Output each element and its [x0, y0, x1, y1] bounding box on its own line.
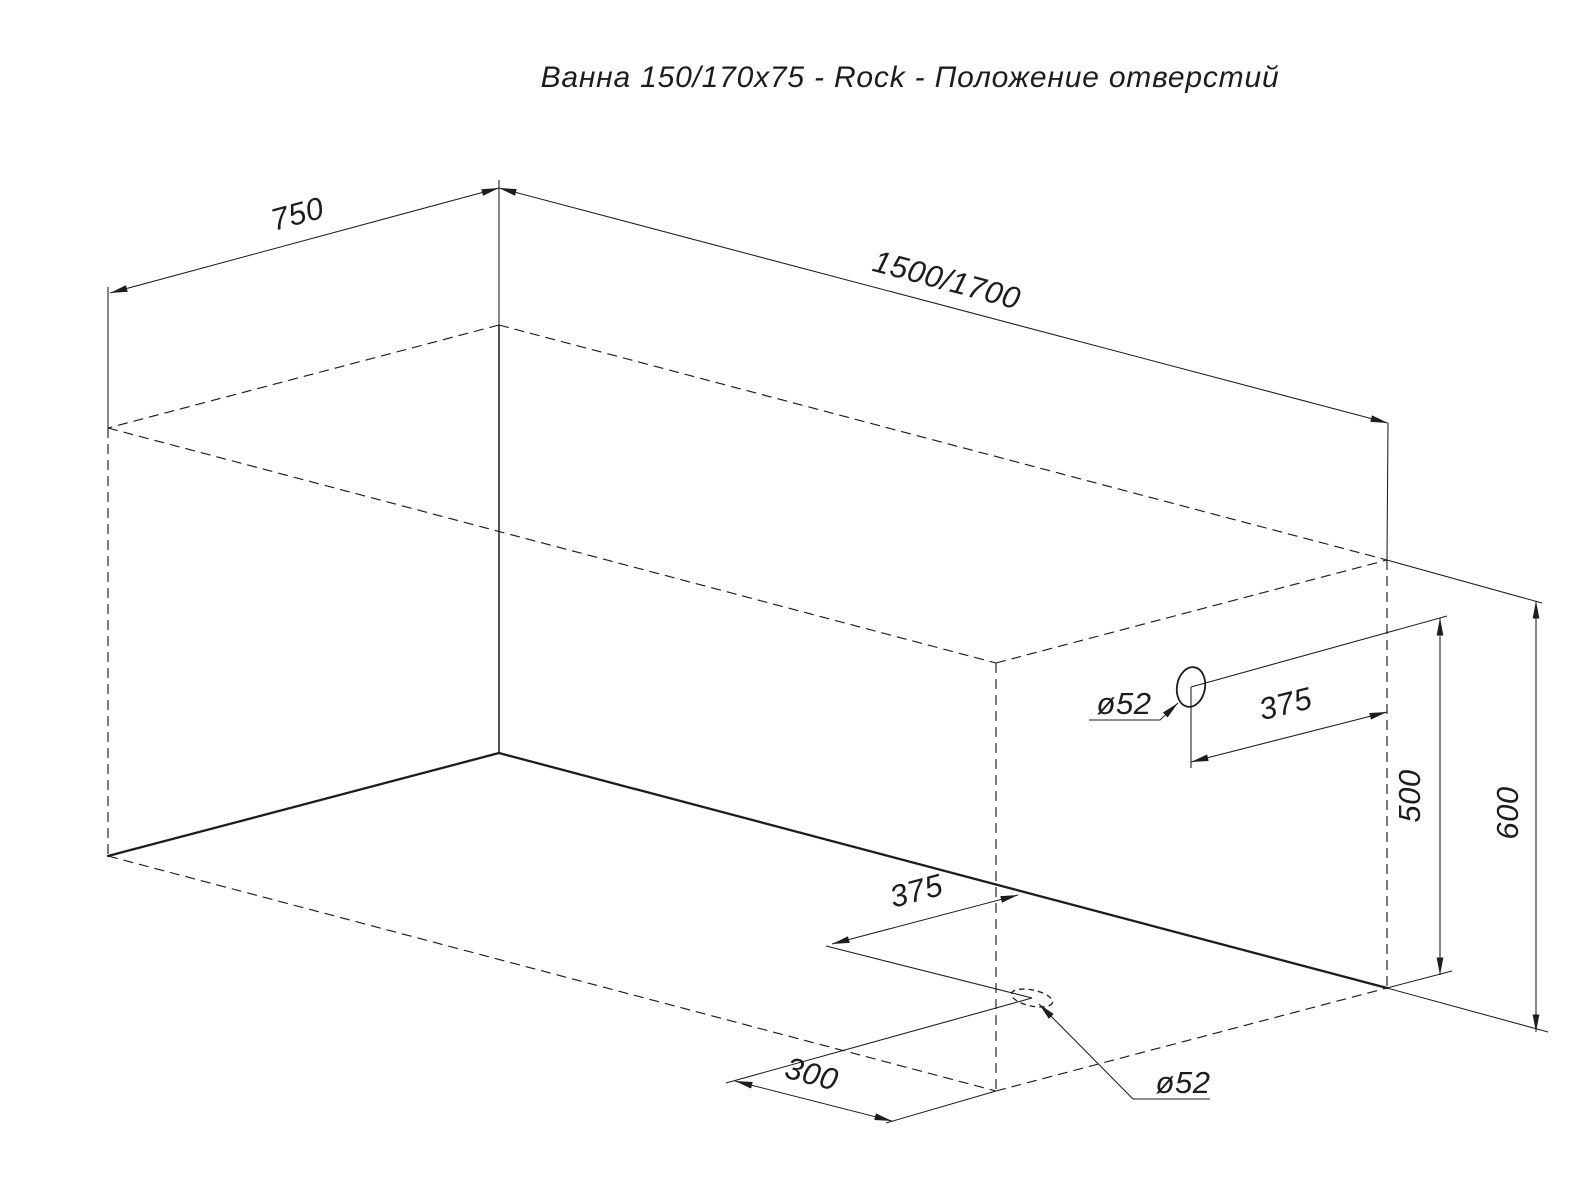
extension-lines [108, 180, 1548, 1123]
dim-label-length: 1500/1700 [869, 243, 1024, 316]
top-rim-back-right-edge [996, 560, 1387, 663]
bottom-back-left-edge [108, 856, 996, 1091]
bottom-front-right-edge [499, 753, 1387, 988]
dimension-overflow-offset-375: 375 [1191, 680, 1387, 762]
drain-hole-group: ø52 [1010, 986, 1211, 1100]
dim-label-overflow-offset: 375 [1255, 680, 1315, 727]
ext-overflow-height-top [1191, 616, 1447, 687]
dim-label-width: 750 [267, 190, 327, 238]
visible-edges [108, 325, 1387, 988]
overflow-diameter-label: ø52 [1097, 686, 1152, 721]
dim-line-length [499, 188, 1388, 423]
dim-label-overflow-height: 500 [1392, 769, 1427, 822]
dimension-length-1500-1700: 1500/1700 [499, 188, 1388, 423]
top-rim-front-left-edge [108, 325, 499, 428]
dim-label-drain-back: 300 [781, 1050, 841, 1098]
hidden-edges [108, 325, 1387, 1091]
dimension-width-750: 750 [110, 188, 499, 293]
dimension-height-600: 600 [1490, 601, 1536, 1032]
ext-overflow-height-bottom [1387, 971, 1452, 988]
bottom-front-left-edge [108, 753, 499, 856]
technical-drawing-page: Ванна 150/170x75 - Rock - Положение отве… [0, 0, 1573, 1189]
dim-label-drain-front: 375 [886, 867, 947, 915]
dimension-drain-back-300: 300 [735, 1050, 892, 1121]
dimension-overflow-height-500: 500 [1392, 618, 1440, 975]
drain-diameter-label: ø52 [1156, 1065, 1211, 1100]
ext-back-bottom-corner [886, 1091, 996, 1123]
top-rim-front-right-edge [499, 325, 1387, 560]
dim-label-height: 600 [1490, 786, 1525, 839]
ext-drain-to-front [826, 946, 1032, 998]
top-rim-back-left-edge [108, 428, 996, 663]
overflow-hole-group: ø52 [1089, 665, 1208, 721]
bathtub-hole-position-drawing: Ванна 150/170x75 - Rock - Положение отве… [0, 0, 1573, 1189]
drawing-title: Ванна 150/170x75 - Rock - Положение отве… [541, 61, 1280, 94]
ext-drain-to-left [726, 998, 1032, 1083]
dimension-drain-front-375: 375 [832, 867, 1018, 944]
ext-height-top [1387, 560, 1542, 603]
ext-height-bottom [1387, 988, 1548, 1032]
ext-right-top-corner [1387, 423, 1388, 560]
